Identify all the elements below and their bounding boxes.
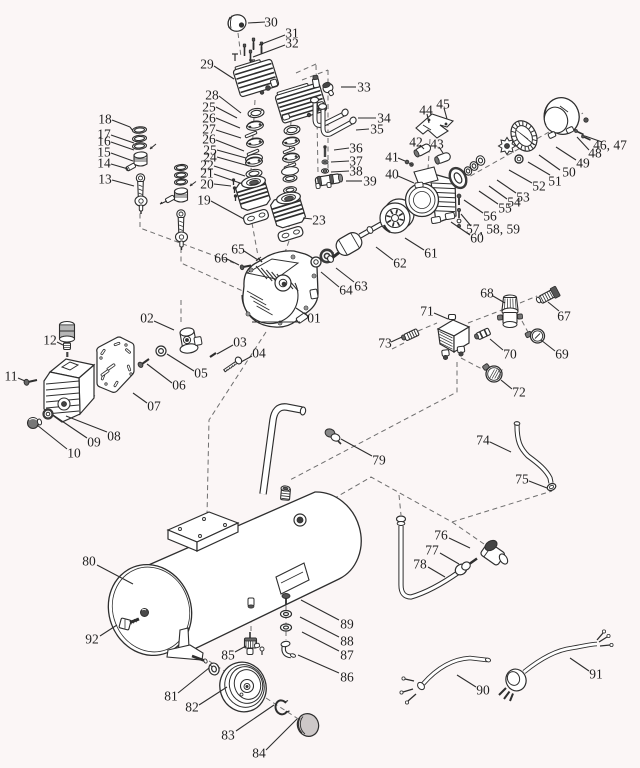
svg-text:38: 38 bbox=[349, 164, 363, 179]
svg-text:68: 68 bbox=[480, 286, 494, 301]
svg-text:60: 60 bbox=[470, 231, 484, 246]
svg-text:04: 04 bbox=[252, 346, 266, 361]
svg-text:11: 11 bbox=[5, 369, 18, 384]
svg-text:90: 90 bbox=[476, 683, 490, 698]
svg-text:71: 71 bbox=[420, 304, 434, 319]
svg-text:51: 51 bbox=[548, 174, 562, 189]
svg-text:18: 18 bbox=[98, 112, 112, 127]
svg-text:84: 84 bbox=[252, 746, 266, 761]
svg-text:67: 67 bbox=[557, 309, 571, 324]
svg-text:33: 33 bbox=[357, 80, 371, 95]
svg-text:75: 75 bbox=[515, 472, 529, 487]
svg-text:30: 30 bbox=[264, 15, 278, 30]
svg-text:73: 73 bbox=[378, 336, 392, 351]
svg-text:55: 55 bbox=[498, 201, 512, 216]
svg-text:92: 92 bbox=[85, 632, 99, 647]
svg-text:87: 87 bbox=[340, 648, 354, 663]
svg-text:82: 82 bbox=[185, 700, 199, 715]
svg-text:64: 64 bbox=[339, 283, 353, 298]
svg-text:49: 49 bbox=[576, 156, 590, 171]
svg-text:81: 81 bbox=[164, 689, 178, 704]
svg-text:08: 08 bbox=[107, 429, 121, 444]
svg-text:12: 12 bbox=[43, 333, 57, 348]
svg-text:48: 48 bbox=[588, 146, 602, 161]
svg-text:32: 32 bbox=[285, 36, 299, 51]
svg-text:63: 63 bbox=[354, 279, 368, 294]
svg-text:10: 10 bbox=[67, 446, 81, 461]
svg-text:29: 29 bbox=[200, 57, 214, 72]
svg-text:02: 02 bbox=[140, 311, 154, 326]
svg-text:88: 88 bbox=[340, 634, 354, 649]
svg-text:39: 39 bbox=[363, 174, 377, 189]
svg-text:85: 85 bbox=[221, 648, 235, 663]
svg-text:76: 76 bbox=[434, 528, 448, 543]
svg-text:40: 40 bbox=[385, 167, 399, 182]
svg-text:45: 45 bbox=[436, 97, 450, 112]
svg-text:09: 09 bbox=[87, 435, 101, 450]
svg-text:80: 80 bbox=[82, 554, 96, 569]
svg-text:89: 89 bbox=[340, 617, 354, 632]
svg-text:19: 19 bbox=[197, 193, 211, 208]
svg-text:83: 83 bbox=[221, 728, 235, 743]
svg-text:65: 65 bbox=[231, 242, 245, 257]
svg-text:01: 01 bbox=[307, 311, 321, 326]
svg-text:77: 77 bbox=[425, 543, 439, 558]
svg-text:79: 79 bbox=[372, 453, 386, 468]
svg-text:07: 07 bbox=[147, 399, 161, 414]
svg-text:72: 72 bbox=[512, 385, 526, 400]
svg-text:05: 05 bbox=[194, 366, 208, 381]
svg-text:70: 70 bbox=[503, 347, 517, 362]
svg-text:42: 42 bbox=[409, 135, 423, 150]
svg-text:43: 43 bbox=[430, 137, 444, 152]
svg-text:61: 61 bbox=[424, 246, 438, 261]
svg-text:52: 52 bbox=[532, 179, 546, 194]
svg-text:41: 41 bbox=[385, 150, 399, 165]
svg-text:91: 91 bbox=[589, 667, 603, 682]
svg-text:62: 62 bbox=[393, 256, 407, 271]
svg-text:35: 35 bbox=[370, 122, 384, 137]
svg-text:69: 69 bbox=[555, 347, 569, 362]
svg-text:14: 14 bbox=[97, 156, 111, 171]
svg-text:03: 03 bbox=[233, 335, 247, 350]
svg-text:06: 06 bbox=[172, 378, 186, 393]
svg-text:78: 78 bbox=[413, 557, 427, 572]
svg-text:20: 20 bbox=[200, 177, 214, 192]
svg-text:74: 74 bbox=[476, 433, 490, 448]
svg-text:86: 86 bbox=[340, 670, 354, 685]
svg-text:50: 50 bbox=[562, 165, 576, 180]
svg-text:44: 44 bbox=[419, 103, 433, 118]
svg-text:66: 66 bbox=[214, 251, 228, 266]
svg-text:23: 23 bbox=[312, 213, 326, 228]
svg-text:13: 13 bbox=[98, 172, 112, 187]
